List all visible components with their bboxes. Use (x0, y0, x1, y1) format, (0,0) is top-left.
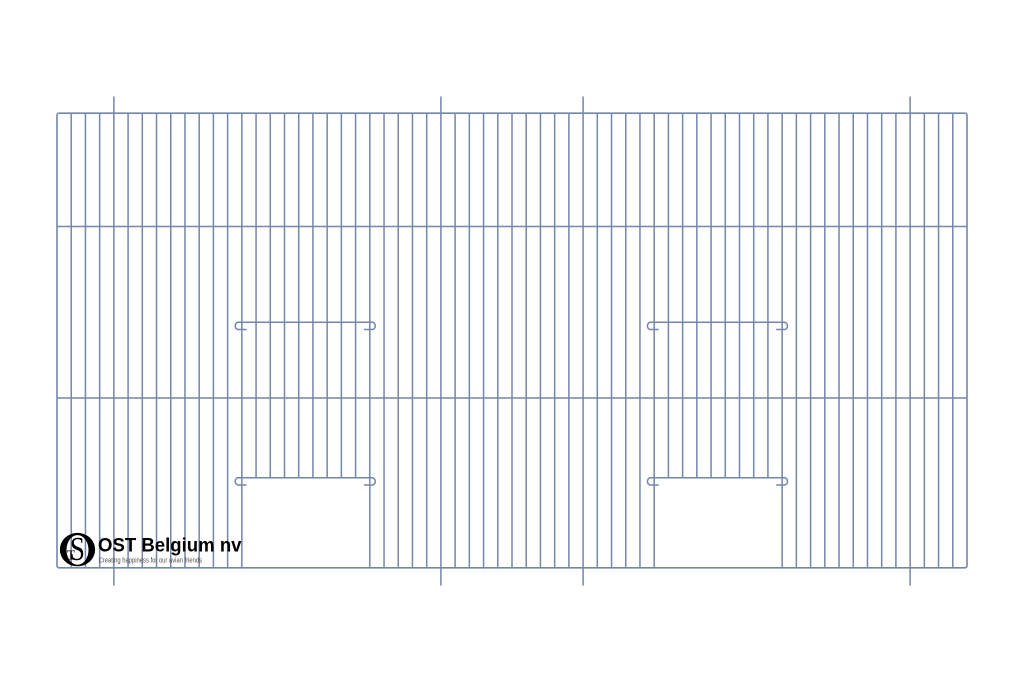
svg-text:Creating happiness for our avi: Creating happiness for our avian friends (99, 557, 203, 565)
svg-text:T: T (67, 548, 75, 563)
svg-text:OST Belgium nv: OST Belgium nv (98, 534, 242, 556)
